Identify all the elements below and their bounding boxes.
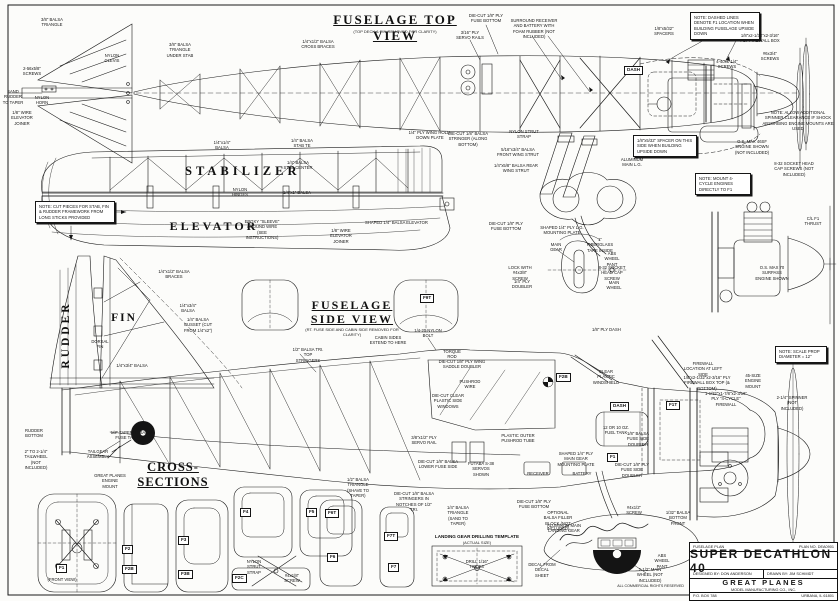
title-block-city: URBANA, IL 61801 [801, 594, 834, 598]
part-label: DIE-CUT 1/8" PLY WING SADDLE DOUBLER [438, 359, 486, 370]
part-label: DECAL FROM DECAL SHEET [528, 562, 556, 578]
former-tag: F5 [306, 508, 317, 517]
former-tag: F7T [384, 532, 398, 541]
part-label: 2" TO 2-1/4" TAILWHEEL (NOT INCLUDED) [20, 449, 52, 470]
part-label: (FRONT VIEW) [44, 577, 80, 582]
part-label: RECEIVER [527, 471, 549, 476]
part-label: 1/4"x1/4" BALSA [207, 140, 237, 151]
note-spinner-clearance: NOTE: ALLOW ADDITIONAL SPINNER CLEARANCE… [762, 110, 834, 132]
part-label: TAILGEAR ASSEMBLY [84, 449, 112, 460]
former-tag: F1T [666, 401, 680, 410]
part-label: SHAPED 1/4" PLY L.G. MOUNTING PLATE [540, 225, 584, 236]
former-tag: F6 [327, 553, 338, 562]
rights-reserved-text: ALL COMMERCIAL RIGHTS RESERVED [612, 584, 684, 588]
view-title-fin: FIN [104, 312, 144, 324]
part-label: DIE-CUT 1/8" PLY FUSE BOTTOM [466, 13, 506, 24]
former-tag: F2B [556, 373, 571, 382]
former-tag: F6T [325, 509, 339, 518]
part-label: 3/8"x1/2" PLY SERVO RAIL [409, 435, 439, 446]
former-tag: F2C [232, 574, 247, 583]
part-label: DIE-CUT CLEAR PLASTIC SIDE WINDOWS [426, 393, 470, 409]
part-label: ALUMINUM MAIN LANDING GEAR [547, 523, 581, 534]
former-tag: F1 [607, 453, 618, 462]
part-label: NYLON STRUT STRAP [509, 129, 539, 140]
blueprint-sheet: FUSELAGE TOP VIEW (TOP DECK & FIN REMOVE… [0, 0, 840, 601]
part-label: NYLON CLEVIS [99, 53, 125, 64]
part-label: BATTERY [572, 471, 592, 476]
part-label: 1/8"x2-1/32"x2-3/16" PLY FIREWALL BOX [737, 33, 783, 44]
part-label: #4x1/8" SCREW [280, 573, 304, 584]
part-label: ALUMINUM MAIN L.G. [618, 157, 646, 168]
part-label: EPOXY "SLEEVE" AROUND WIRE (SEE INSTRUCT… [242, 219, 282, 240]
part-label: 1/8"x2-1/32"x2-3/16" PLY FIREWALL BOX TO… [683, 375, 731, 391]
part-label: 1/32" BALSA BOTTOM FRONT [664, 510, 692, 526]
part-label: 1/4-20 NYLON BOLT [413, 328, 443, 339]
part-label: DIE-CUT 1/8" BALSA STRINGERS IN NOTCHES … [392, 491, 436, 512]
view-title-rudder: RUDDER [60, 300, 72, 370]
former-tag: F2 [122, 545, 133, 554]
part-label: 8-32 SOCKET HEAD CAP SCREWS (NOT INCLUDE… [774, 161, 814, 177]
part-label: DIE-CUT 1/8" BALSA LOWER FUSE SIDE [416, 459, 460, 470]
part-label: DIE-CUT 1/8" PLY FUSE BOTTOM [488, 221, 524, 232]
part-label: DIE-CUT 1/8" BALSA STRINGER (ALONG BOTTO… [446, 131, 490, 147]
part-label: 1/4"x1/2" BALSA CROSS BRACES [300, 39, 336, 50]
title-block-drawn-by: DRAWN BY: JIM SCHMIDT [764, 570, 837, 578]
note-scale-prop: NOTE: SCALE PROP DIAMETER = 12" [775, 346, 827, 363]
view-title-fuselage-side-1: FUSELAGE [307, 298, 397, 313]
part-label: 3/16" PLY SERVO RAILS [455, 30, 485, 41]
part-label: O.S. MAX 46SF ENGINE SHOWN (NOT INCLUDED… [734, 139, 770, 155]
note-spacer-side: 1/8"x5/32" SPACER ON THIS SIDE WHEN BUIL… [633, 135, 697, 157]
note-cut-pieces: NOTE: CUT PIECES FOR STAB, FIN & RUDDER … [35, 201, 115, 223]
former-tag: F2B [122, 565, 137, 574]
part-label: 1/4"x1/2" BALSA BRACES [157, 269, 191, 280]
part-label: PUSHROD WIRE [456, 379, 484, 390]
part-label: 1/4" PLY DOUBLER [509, 279, 535, 290]
part-label: 1/4" BALSA GUSSET (CUT FROM 1/4"x2") [178, 317, 218, 333]
title-block-company: GREAT PLANES [722, 579, 804, 587]
former-tag: F7 [388, 563, 399, 572]
part-label: MAIN WHEEL [602, 280, 626, 291]
part-label: 3/8" BALSA TRIANGLE [35, 17, 69, 28]
part-label: NYLON HORN [30, 95, 54, 106]
former-tag: F4 [240, 508, 251, 517]
part-label: 1/4"x1" BALSA [283, 190, 311, 195]
part-label: SHAPED 1/4" PLY MAIN GEAR MOUNTING PLATE [554, 451, 598, 467]
part-label: 2-1/4" SPINNER (NOT INCLUDED) [776, 395, 808, 411]
part-label: TORQUE ROD [439, 349, 465, 360]
part-label: 1/2" TAPERED BALSA FUSE TAIL POST [110, 430, 154, 441]
part-label: NYLON STRUT STRAP [240, 559, 268, 575]
part-label: C/L F1 THRUST [800, 216, 826, 227]
view-subtitle-lg-template: (ACTUAL SIZE) [428, 540, 526, 545]
part-label: 45-SIZE ENGINE MOUNT [738, 373, 768, 389]
part-label: 1/4" BALSA TRIANGLE (SAND TO TAPER) [442, 505, 474, 526]
part-label: 1/8" WIRE ELEVATOR JOINER [325, 228, 357, 244]
part-label: 1/4" BALSA STAB TE [287, 138, 317, 149]
former-tag: DASH [610, 402, 629, 411]
part-label: NYLON HINGES [227, 187, 253, 198]
view-subtitle-fuselage-top: (TOP DECK & FIN REMOVED FOR CLARITY) [320, 29, 470, 34]
part-label: #4x1/2" SCREW [622, 505, 646, 516]
part-label: 1-1/32"x1-7/8"x2-3/16" PLY "4-CYCLE" FIR… [701, 391, 751, 407]
part-label: 1/4"x3/4" BALSA [173, 303, 203, 314]
part-label: MAIN GEAR [545, 242, 567, 253]
plan-title: SUPER DECATHLON 40 [690, 552, 837, 570]
part-label: FUTABA S-38 SERVOS SHOWN [466, 461, 496, 477]
part-label: O.S. MAX 70 SURPASS ENGINE SHOWN [754, 265, 790, 281]
part-label: DIE-CUT 1/8" PLY FUSE SIDE DOUBLER [612, 462, 652, 478]
part-label: 1/8"x5/32" SPACERS [650, 26, 678, 37]
title-block-designed-by: DESIGNED BY: DON ANDERSON [690, 570, 764, 578]
title-block-po-box: P.O. BOX 788 [693, 594, 717, 598]
part-label: GREAT PLANES ENGINE MOUNT [94, 473, 126, 489]
part-label: CLEAR PLASTIC WINDSHIELD [590, 369, 622, 385]
view-title-stabilizer: STABILIZER [185, 164, 295, 179]
part-label: 1/4"x3/4" BALSA [116, 363, 148, 368]
part-label: 2-1/2" MAIN WHEEL (NOT INCLUDED) [634, 567, 666, 583]
former-tag: F3B [178, 570, 193, 579]
note-mount-4cycle: NOTE: MOUNT 4-CYCLE ENGINES DIRECTLY TO … [695, 173, 751, 195]
part-label: 1/2" BALSA TRI. TOP STRINGERS [291, 347, 325, 363]
part-label: 1/4" BALSA STAB CENTER [283, 160, 313, 171]
part-label: SURROUND RECEIVER AND BATTERY WITH FOAM … [510, 18, 558, 39]
part-label: 8-32 SOCKET HEAD CAP SCREW [595, 265, 629, 281]
part-label: 1/4"x5/8" BALSA REAR WING STRUT [494, 163, 538, 174]
former-tag: DASH [624, 66, 643, 75]
cross-sections-drawing [38, 487, 414, 592]
part-label: 1/8" BALSA FUSE SIDE DOUBLER [622, 431, 654, 447]
part-label: PLASTIC OUTER PUSHROD TUBE [501, 433, 535, 444]
part-label: 3/8" BALSA TRIANGLE UNDER STAB [162, 42, 198, 58]
former-tag: F1 [56, 564, 67, 573]
part-label: 5/16"x3/4" BALSA FRONT WING STRUT [496, 147, 540, 158]
view-title-cross-sections: CROSS-SECTIONS [118, 460, 228, 490]
part-label: 2-56x5/8" SCREWS [17, 66, 47, 77]
title-block: FUSELAGE PLAN PLAN NO. DEA0901 SUPER DEC… [689, 542, 838, 601]
part-label: #6x3/4" SCREWS [758, 51, 782, 62]
part-label: SAND RUDDER TO TAPER [2, 89, 24, 105]
part-label: 1/2" BALSA TRIANGLE (SHAVE TO TAPER) [341, 477, 375, 498]
former-tag: F9T [420, 294, 434, 303]
former-tag: F3 [178, 536, 189, 545]
part-label: RUDDER BOTTOM [19, 428, 49, 439]
part-label: DORSAL FIN [88, 339, 112, 350]
view-title-fuselage-top: FUSELAGE TOP VIEW [320, 12, 470, 44]
view-title-lg-template: LANDING GEAR DRILLING TEMPLATE [428, 534, 526, 539]
part-label: 1/8" WIRE ELEVATOR JOINER [6, 110, 38, 126]
view-title-fuselage-side-2: SIDE VIEW [307, 312, 397, 327]
part-label: DIE-CUT 1/8" PLY FUSE BOTTOM [515, 499, 553, 510]
part-label: SHAPED 1/4" BALSA ELEVATOR [365, 220, 427, 225]
tail-top-view-drawing [8, 24, 132, 163]
part-label: 4-40x1-1/4" SCREWS [713, 59, 741, 70]
part-label: DRILL 1/16" HOLES [463, 559, 491, 570]
part-label: CABIN SIDES EXTEND TO HERE [368, 335, 408, 346]
part-label: 1/8" PLY DASH [592, 327, 620, 332]
